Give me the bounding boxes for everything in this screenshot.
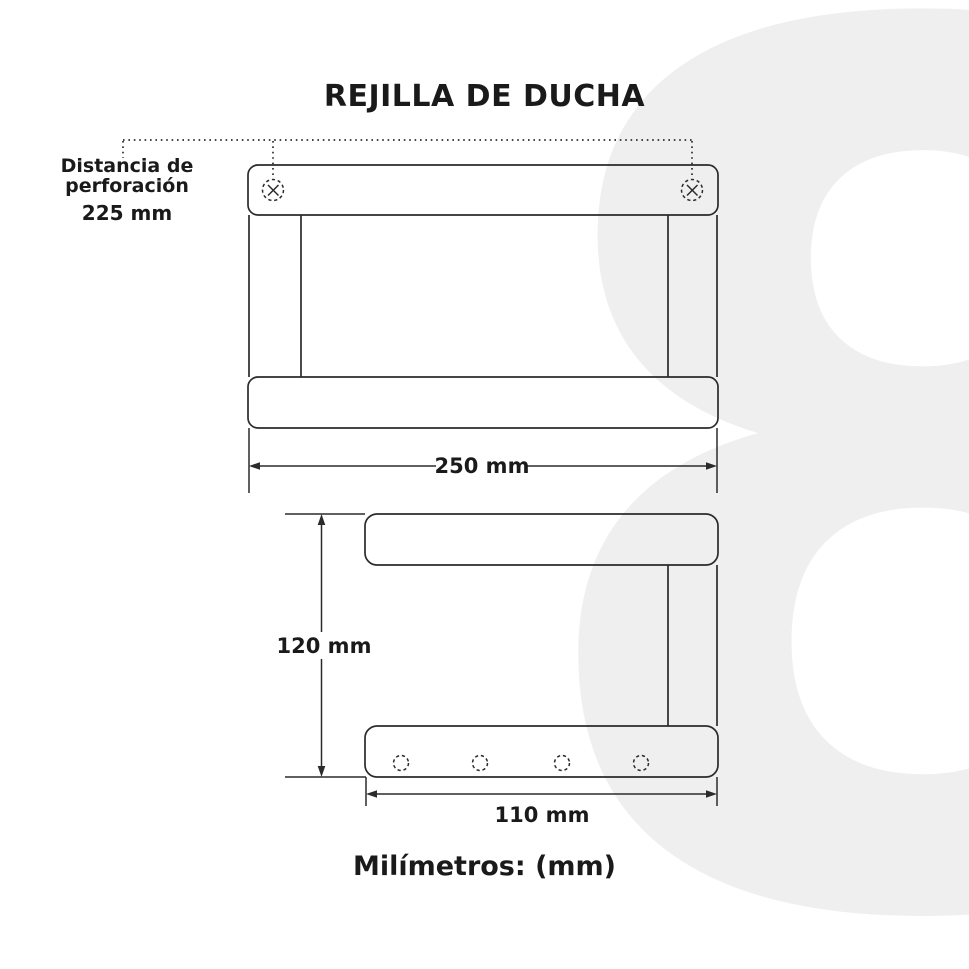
dimension-110mm: [366, 777, 717, 806]
drain-hole-3: [555, 756, 570, 771]
drill-distance-line2: perforación: [38, 176, 216, 196]
diagram-canvas: 8 REJILLA DE DUCHA Distancia de perforac…: [0, 0, 969, 969]
drill-distance-value: 225 mm: [38, 203, 216, 223]
dim-label-250mm: 250 mm: [435, 454, 530, 478]
dim-110-arrow-left: [366, 790, 377, 798]
drain-hole-4: [634, 756, 649, 771]
units-note: Milímetros: (mm): [0, 851, 969, 882]
dim-120-arrow-up: [318, 514, 326, 525]
dim-250-arrow-left: [249, 462, 260, 470]
dim-label-110mm: 110 mm: [495, 803, 590, 827]
dim-250-arrow-right: [706, 462, 717, 470]
drill-distance-label: Distancia de perforación 225 mm: [38, 156, 216, 223]
dim-120-arrow-down: [318, 766, 326, 777]
page-title: REJILLA DE DUCHA: [0, 79, 969, 114]
technical-drawing: [0, 0, 969, 969]
dim-label-120mm: 120 mm: [277, 634, 372, 658]
drain-holes: [394, 756, 649, 771]
drill-distance-line1: Distancia de: [38, 156, 216, 176]
side-view-top-bar: [365, 514, 718, 565]
top-view: [248, 165, 718, 428]
side-view: [365, 514, 718, 777]
top-view-wall-bar: [248, 165, 718, 215]
screw-hole-right: [682, 180, 703, 201]
side-view-bottom-bar: [365, 726, 718, 777]
drain-hole-1: [394, 756, 409, 771]
dim-110-arrow-right: [706, 790, 717, 798]
top-view-front-bar: [248, 377, 718, 428]
screw-hole-left: [263, 180, 284, 201]
drain-hole-2: [473, 756, 488, 771]
